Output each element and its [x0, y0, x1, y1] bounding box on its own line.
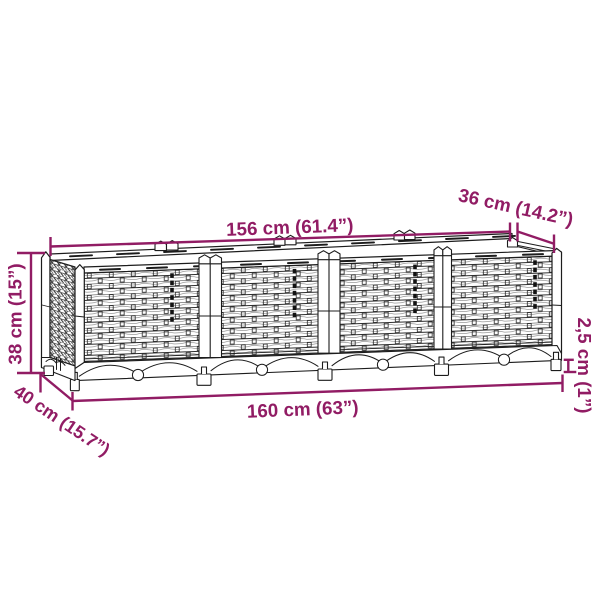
svg-text:38 cm (15”): 38 cm (15”): [5, 263, 26, 364]
svg-text:2,5 cm (1”): 2,5 cm (1”): [574, 317, 595, 413]
svg-text:160 cm (63”): 160 cm (63”): [247, 396, 359, 421]
